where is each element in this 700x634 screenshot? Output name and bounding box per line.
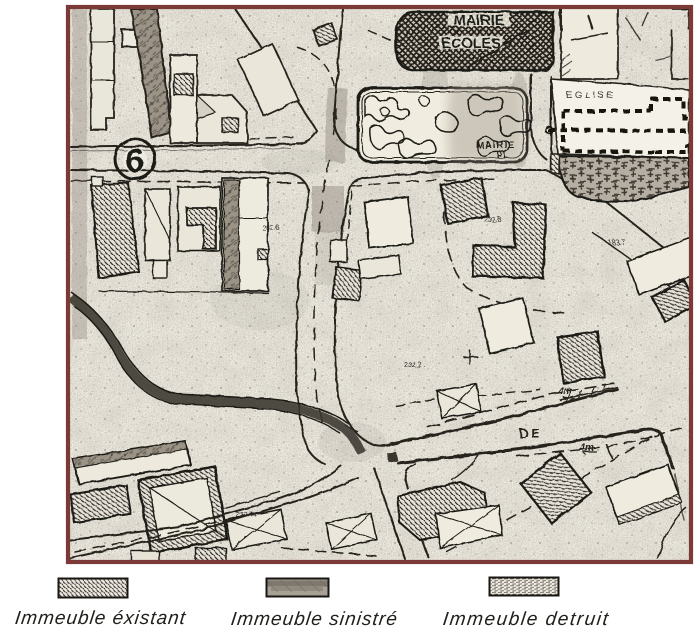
svg-text:232.8: 232.8: [484, 217, 502, 224]
svg-text:MAIRIE: MAIRIE: [454, 13, 505, 29]
svg-text:183.7: 183.7: [608, 240, 626, 247]
svg-text:282.6: 282.6: [262, 225, 280, 232]
svg-text:Immeuble sinistré: Immeuble sinistré: [230, 609, 399, 630]
svg-text:6: 6: [126, 142, 145, 180]
svg-text:Immeuble éxistant: Immeuble éxistant: [14, 608, 187, 629]
svg-text:232.44: 232.44: [236, 512, 258, 519]
svg-text:MAIRIE: MAIRIE: [476, 140, 515, 151]
svg-text:232.2 .: 232.2 .: [404, 362, 425, 369]
svg-text:DE: DE: [519, 426, 543, 441]
svg-text:EGLISE: EGLISE: [566, 90, 615, 101]
svg-text:4m: 4m: [557, 386, 573, 397]
svg-text:ECOLES: ECOLES: [441, 36, 501, 52]
svg-text:PL: PL: [497, 151, 509, 160]
